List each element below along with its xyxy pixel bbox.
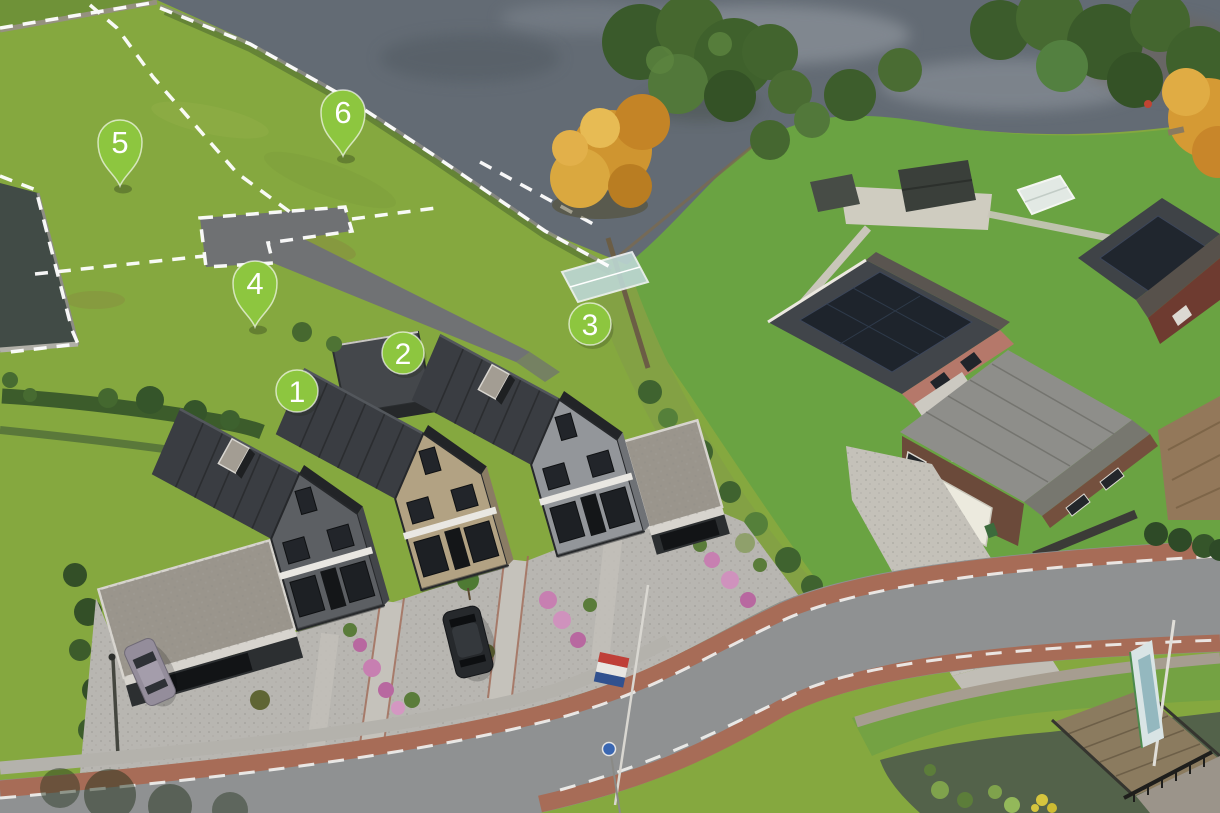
marker-number: 3	[582, 309, 599, 342]
marker-number: 2	[395, 338, 412, 371]
aerial-site-plan: 123456	[0, 0, 1220, 813]
marker-number: 4	[246, 266, 263, 301]
marker-number: 5	[111, 125, 128, 160]
marker-number: 6	[334, 95, 351, 130]
marker-number: 1	[289, 376, 306, 409]
